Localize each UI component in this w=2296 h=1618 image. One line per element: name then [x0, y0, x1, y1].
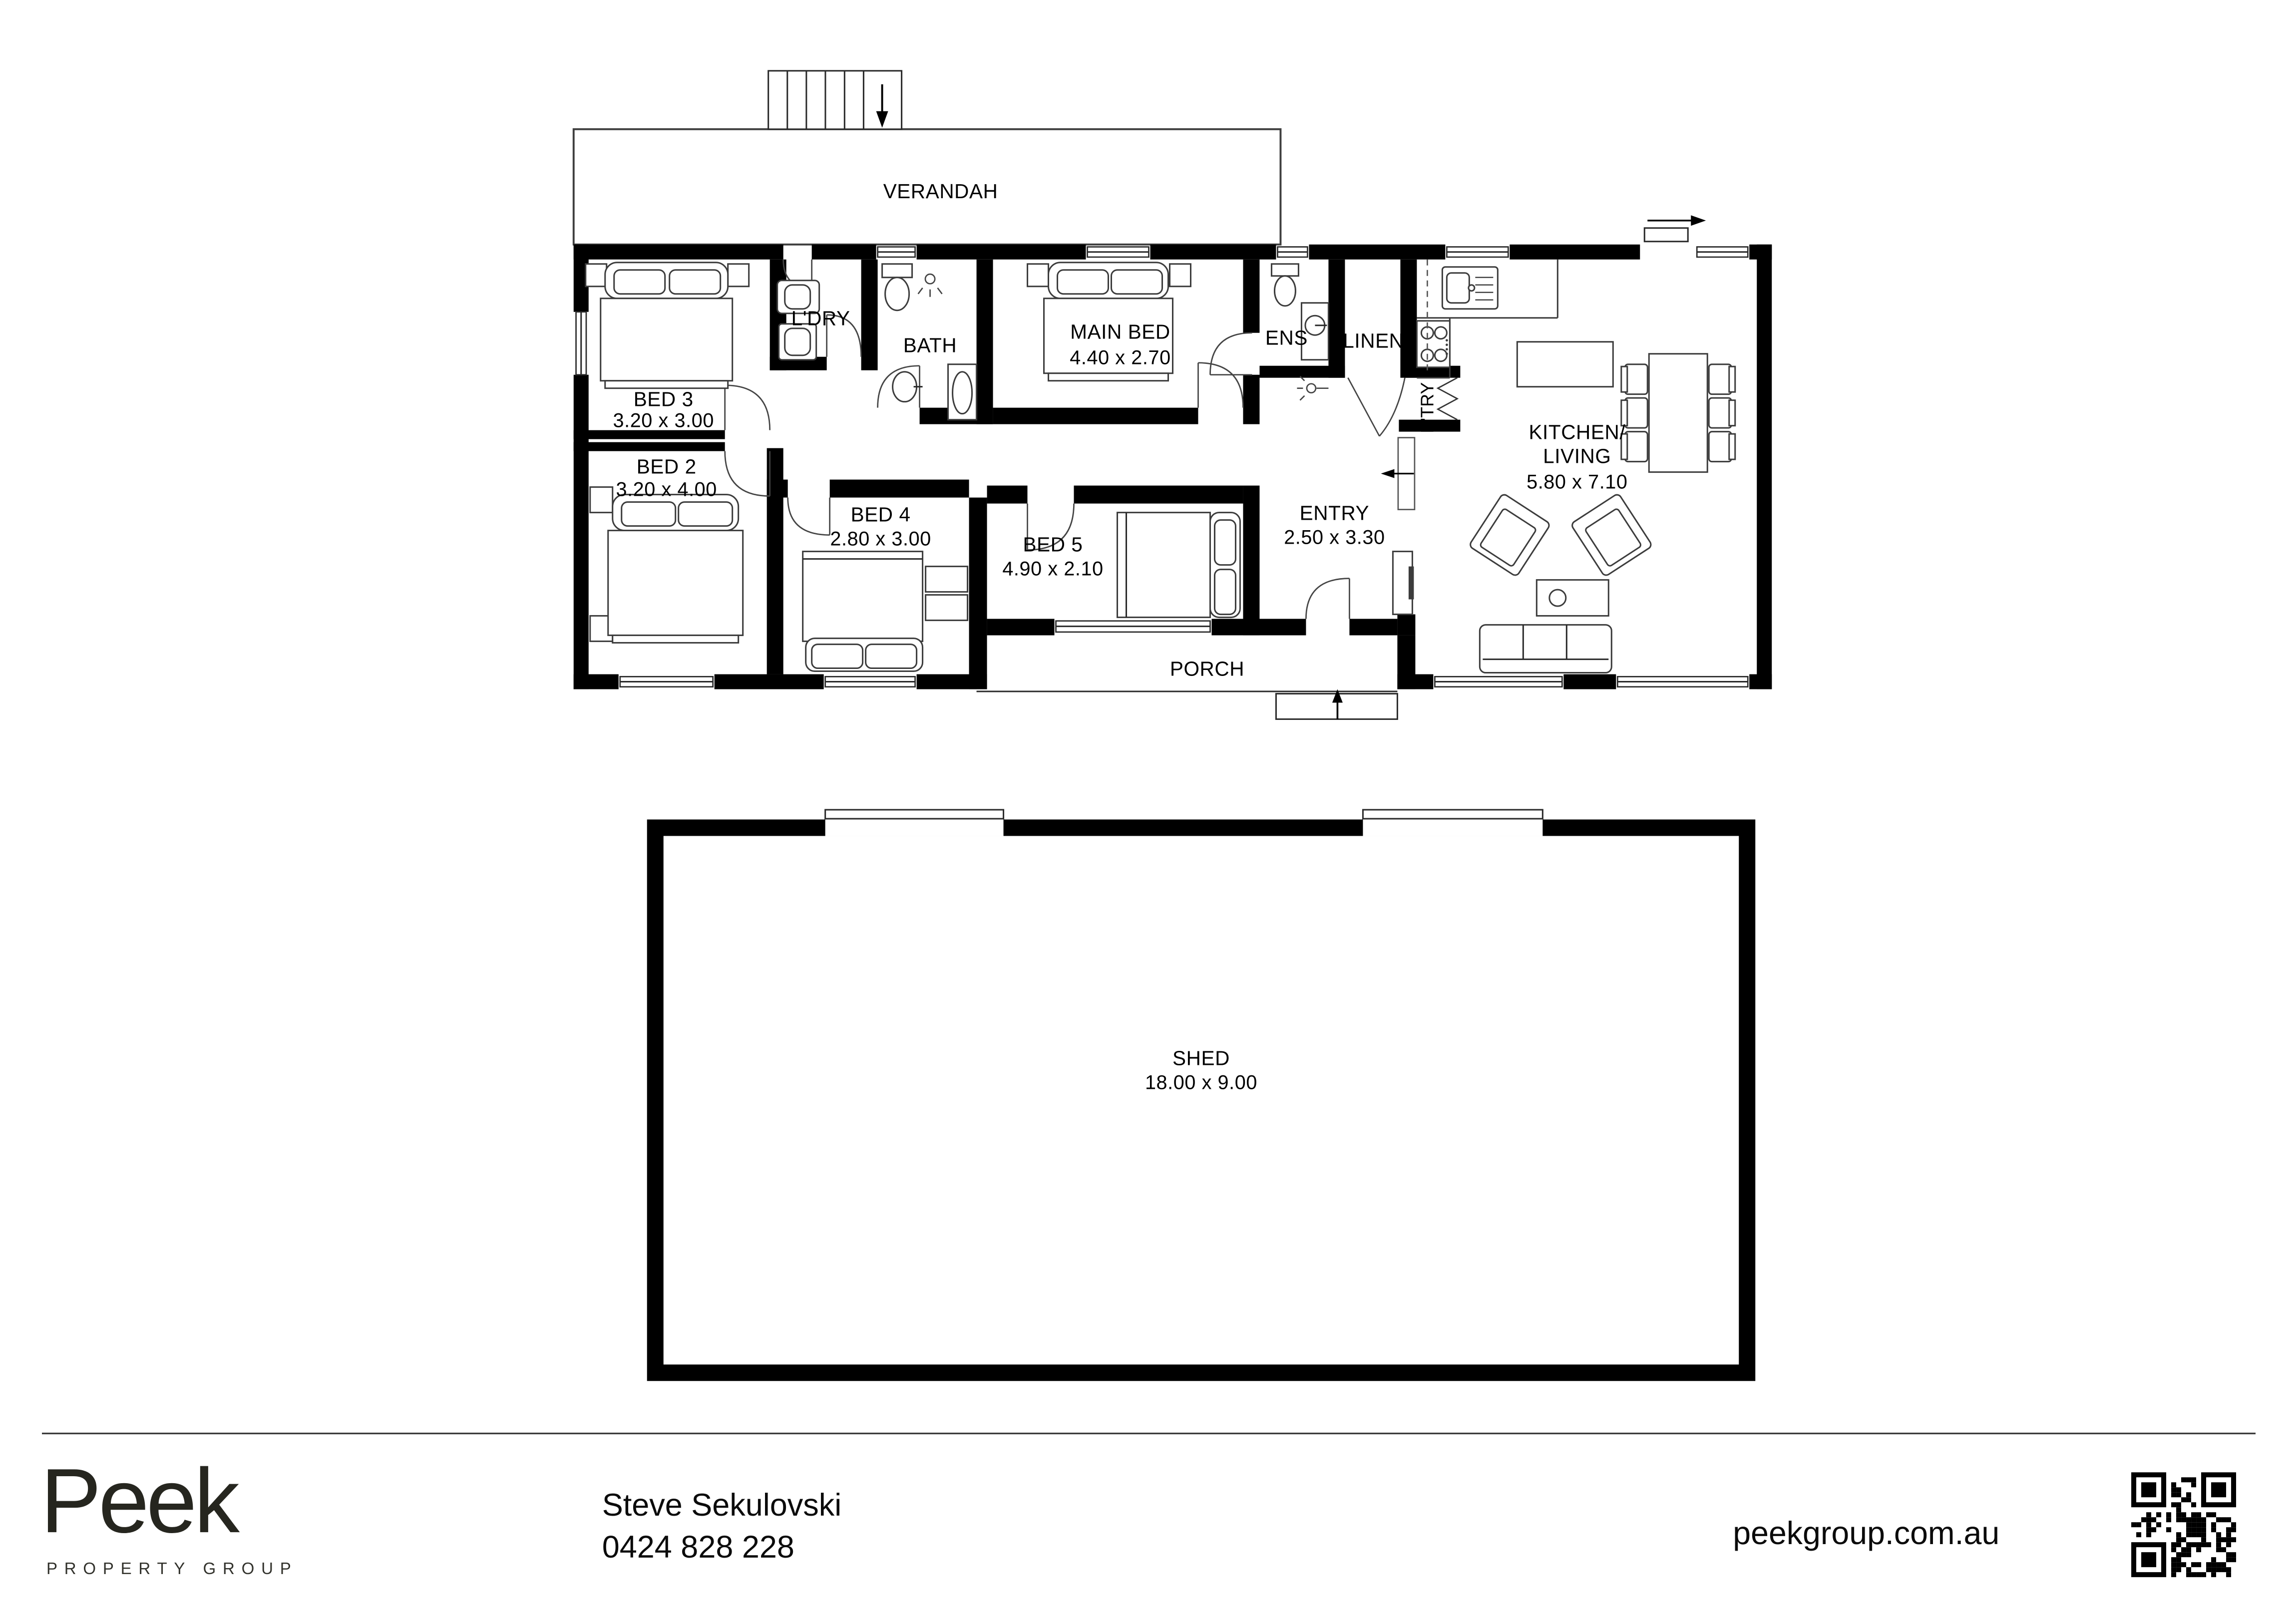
room-label-kitchen-line2: LIVING — [1543, 445, 1611, 468]
verandah-area: VERANDAH — [574, 71, 1281, 245]
door-pantry-bifold — [1438, 378, 1457, 420]
door-entry — [1306, 579, 1349, 619]
footer: Peek PROPERTY GROUP Steve Sekulovski 042… — [40, 1433, 2256, 1580]
bath-basin — [893, 372, 923, 402]
room-label-entry: ENTRY — [1300, 502, 1369, 525]
shed-roller-door — [825, 819, 1004, 836]
window-bed2-bottom — [620, 676, 713, 686]
room-label-ldry: L'DRY — [791, 307, 850, 330]
window-bath — [878, 247, 915, 257]
room-dims-bed5: 4.90 x 2.10 — [1002, 558, 1103, 580]
side-door — [1644, 215, 1706, 241]
kitchen-sink — [1442, 267, 1498, 309]
qr-code — [2128, 1469, 2239, 1580]
ens-toilet — [1271, 264, 1298, 306]
room-label-bed5: BED 5 — [1023, 533, 1083, 556]
dining-table — [1621, 354, 1735, 472]
room-label-verandah: VERANDAH — [883, 180, 998, 203]
room-dims-bed2: 3.20 x 4.00 — [616, 479, 717, 501]
armchair — [1469, 493, 1550, 577]
room-dims-entry: 2.50 x 3.30 — [1284, 527, 1385, 549]
armchair — [1570, 493, 1652, 577]
door-bed3 — [725, 385, 770, 430]
footer-divider — [42, 1433, 2256, 1434]
door-linen — [1348, 378, 1405, 436]
shed-area: SHED 18.00 x 9.00 — [647, 810, 1756, 1381]
room-dims-main-bed: 4.40 x 2.70 — [1070, 347, 1170, 369]
porch-area — [977, 689, 1398, 719]
room-label-kitchen-line1: KITCHEN/ — [1529, 421, 1625, 444]
bed2-bed — [590, 487, 743, 643]
room-label-bed4: BED 4 — [851, 503, 911, 526]
room-label-ens: ENS — [1265, 326, 1308, 349]
window-kitchen-sink — [1447, 247, 1508, 257]
room-label-porch: PORCH — [1170, 657, 1244, 680]
window-bed5-bottom — [1056, 621, 1210, 632]
door-bed2 — [725, 451, 770, 496]
room-dims-shed: 18.00 x 9.00 — [1145, 1071, 1257, 1093]
room-label-bed3: BED 3 — [634, 388, 694, 411]
door-ens — [1210, 333, 1252, 375]
window-kitchen-right — [1697, 247, 1748, 257]
bath-toilet — [882, 264, 912, 311]
window-living-bottom-right — [1617, 676, 1748, 686]
side-door-arrow-icon — [1647, 215, 1706, 226]
bed5-bed — [1118, 513, 1240, 618]
room-label-ptry: P'TRY — [1417, 382, 1437, 433]
room-label-bed2: BED 2 — [637, 455, 697, 478]
bed3-bed — [586, 263, 749, 388]
room-label-main-bed: MAIN BED — [1070, 321, 1170, 343]
kitchen-island — [1517, 342, 1613, 387]
door-main-bed — [1198, 363, 1243, 408]
agent-name: Steve Sekulovski — [602, 1488, 842, 1523]
room-dims-bed3: 3.20 x 3.00 — [613, 410, 714, 432]
website-url: peekgroup.com.au — [1733, 1515, 1999, 1551]
bed4-bed — [803, 552, 968, 671]
tv-unit — [1393, 552, 1414, 615]
room-label-linen: LINEN — [1343, 329, 1404, 352]
window-bed4-bottom — [825, 676, 915, 686]
bath-tub — [948, 364, 977, 420]
peek-logo: Peek — [40, 1449, 240, 1552]
room-label-shed: SHED — [1172, 1046, 1230, 1069]
side-door-step — [1644, 228, 1688, 242]
bath-light-icon — [918, 274, 942, 297]
room-dims-kitchen: 5.80 x 7.10 — [1527, 471, 1627, 493]
agent-phone: 0424 828 228 — [602, 1530, 794, 1565]
window-main-bed — [1088, 247, 1149, 257]
floor-plan-page: VERANDAH — [0, 0, 2296, 1618]
room-label-bath: BATH — [903, 334, 957, 357]
window-living-bottom-left — [1435, 676, 1562, 686]
shed-roller-door — [1363, 819, 1542, 836]
door-bed4 — [788, 498, 830, 535]
room-dims-bed4: 2.80 x 3.00 — [830, 528, 931, 550]
kitchen-cooktop — [1417, 321, 1450, 367]
sofa — [1480, 625, 1611, 673]
coffee-table — [1536, 580, 1608, 616]
window-ens — [1277, 247, 1307, 257]
brand-tagline: PROPERTY GROUP — [46, 1559, 298, 1578]
hall-wall-light-icon — [1297, 376, 1328, 400]
window-bed3-left — [576, 312, 586, 375]
floor-plan-image: VERANDAH — [0, 0, 2296, 1618]
